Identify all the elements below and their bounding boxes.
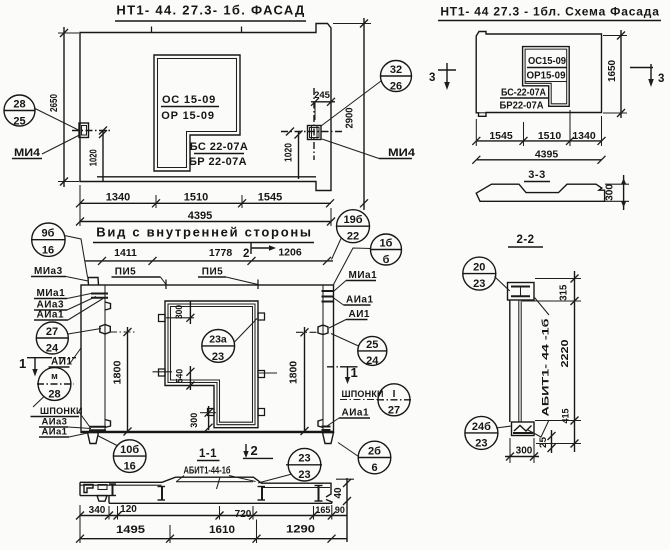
svg-text:23а: 23а: [209, 334, 227, 346]
svg-text:АБИТ1-44-1б: АБИТ1-44-1б: [184, 465, 231, 477]
svg-text:32: 32: [390, 64, 402, 76]
svg-text:415: 415: [560, 408, 571, 424]
svg-text:3: 3: [429, 72, 435, 84]
svg-text:1800: 1800: [113, 360, 124, 384]
svg-text:300: 300: [174, 305, 185, 319]
svg-text:МИа1: МИа1: [349, 270, 378, 281]
svg-text:1495: 1495: [116, 524, 145, 536]
svg-text:2: 2: [251, 443, 258, 458]
svg-text:ШПОНКИ: ШПОНКИ: [342, 389, 384, 399]
svg-text:23: 23: [212, 351, 224, 363]
svg-text:23: 23: [475, 437, 487, 449]
svg-text:АИа1: АИа1: [342, 408, 370, 419]
svg-text:16: 16: [42, 245, 54, 257]
svg-text:24б: 24б: [472, 421, 491, 433]
svg-text:28: 28: [13, 99, 25, 111]
svg-text:340: 340: [89, 505, 106, 516]
svg-text:24: 24: [366, 355, 379, 367]
svg-text:1340: 1340: [106, 192, 130, 204]
svg-text:9б: 9б: [42, 228, 55, 240]
svg-text:28: 28: [48, 389, 60, 401]
svg-text:1020: 1020: [284, 143, 295, 162]
svg-text:23: 23: [298, 453, 310, 465]
svg-text:МИа1: МИа1: [37, 288, 66, 299]
svg-text:24: 24: [46, 343, 59, 355]
svg-text:4395: 4395: [535, 149, 559, 161]
svg-text:МИ4: МИ4: [388, 147, 416, 159]
svg-text:1-1: 1-1: [199, 448, 217, 460]
svg-text:1340: 1340: [572, 130, 596, 142]
svg-text:1б: 1б: [380, 238, 393, 250]
svg-text:ПИ5: ПИ5: [202, 267, 223, 278]
svg-text:БС 22-07А: БС 22-07А: [190, 141, 248, 153]
svg-text:Вид с внутренней стороны: Вид с внутренней стороны: [96, 225, 312, 240]
svg-text:1020: 1020: [89, 149, 100, 166]
svg-text:1545: 1545: [258, 192, 282, 204]
svg-text:1206: 1206: [278, 247, 302, 259]
svg-text:23: 23: [473, 278, 485, 290]
svg-text:б: б: [383, 254, 390, 266]
svg-text:1510: 1510: [538, 130, 562, 142]
svg-text:НТ1- 44 27.3 - 1бл. Схема Фас: НТ1- 44 27.3 - 1бл. Схема Фасада: [440, 5, 659, 19]
svg-text:90: 90: [335, 505, 345, 515]
svg-text:БР22-07А: БР22-07А: [500, 101, 544, 112]
svg-text:23: 23: [298, 469, 310, 481]
svg-text:1290: 1290: [286, 524, 315, 536]
svg-text:27: 27: [388, 404, 400, 416]
svg-text:АИ1: АИ1: [349, 309, 370, 320]
svg-text:25: 25: [13, 116, 25, 128]
svg-text:2650: 2650: [49, 94, 60, 112]
svg-text:АИа1: АИа1: [346, 295, 374, 306]
svg-text:АИа1: АИа1: [42, 427, 68, 438]
svg-text:1778: 1778: [209, 247, 233, 259]
svg-text:1650: 1650: [607, 60, 618, 82]
svg-text:ОС 15-09: ОС 15-09: [162, 94, 216, 106]
svg-text:2б: 2б: [368, 446, 381, 458]
svg-text:1510: 1510: [184, 192, 208, 204]
svg-text:25: 25: [366, 339, 378, 351]
svg-text:300: 300: [605, 183, 616, 200]
svg-text:ШПОНКИ: ШПОНКИ: [40, 406, 83, 416]
svg-text:3-3: 3-3: [528, 169, 545, 181]
svg-text:I: I: [393, 389, 396, 400]
svg-text:1: 1: [19, 356, 26, 371]
svg-text:БР 22-07А: БР 22-07А: [189, 156, 247, 168]
svg-text:6: 6: [371, 462, 377, 474]
svg-text:16: 16: [124, 461, 136, 473]
svg-text:315: 315: [558, 284, 569, 300]
svg-text:4395: 4395: [188, 210, 212, 222]
svg-text:1545: 1545: [489, 130, 513, 142]
svg-text:МИ4: МИ4: [14, 147, 41, 159]
svg-text:ОР 15-09: ОР 15-09: [161, 110, 214, 122]
svg-text:2220: 2220: [560, 339, 571, 368]
svg-text:2-2: 2-2: [516, 234, 534, 246]
svg-text:19б: 19б: [343, 214, 362, 226]
svg-text:27: 27: [46, 326, 58, 338]
svg-text:НТ1- 44. 27.3- 1б. ФАСАД: НТ1- 44. 27.3- 1б. ФАСАД: [116, 3, 305, 18]
svg-text:ПИ5: ПИ5: [115, 267, 136, 278]
svg-text:МИа3: МИа3: [34, 266, 63, 277]
svg-text:БС-22-07А: БС-22-07А: [501, 88, 546, 99]
svg-text:540: 540: [175, 369, 186, 383]
svg-text:ОР15-09: ОР15-09: [527, 71, 566, 82]
svg-text:40: 40: [333, 487, 344, 498]
svg-text:20: 20: [473, 262, 485, 274]
svg-text:АИа1: АИа1: [37, 310, 65, 321]
svg-text:2: 2: [243, 248, 249, 260]
svg-text:1: 1: [351, 365, 358, 380]
svg-text:26: 26: [390, 81, 402, 93]
svg-text:2900: 2900: [345, 107, 356, 128]
svg-text:245: 245: [314, 90, 331, 101]
svg-text:АБИТ1- 44 -1б: АБИТ1- 44 -1б: [541, 318, 551, 417]
svg-text:АИ1: АИ1: [51, 357, 72, 368]
svg-text:300: 300: [516, 446, 533, 457]
svg-text:720: 720: [235, 509, 252, 520]
svg-text:300: 300: [189, 413, 200, 428]
svg-text:1800: 1800: [289, 361, 300, 384]
svg-text:ОС15-09: ОС15-09: [528, 56, 566, 67]
svg-text:120: 120: [120, 504, 137, 515]
svg-text:22: 22: [347, 231, 359, 243]
svg-text:1610: 1610: [209, 524, 235, 536]
svg-text:м: м: [51, 371, 58, 381]
svg-text:3: 3: [658, 73, 664, 85]
svg-text:1411: 1411: [114, 247, 137, 259]
svg-text:165: 165: [315, 505, 330, 515]
svg-text:25: 25: [538, 436, 549, 448]
svg-text:10б: 10б: [120, 444, 139, 456]
